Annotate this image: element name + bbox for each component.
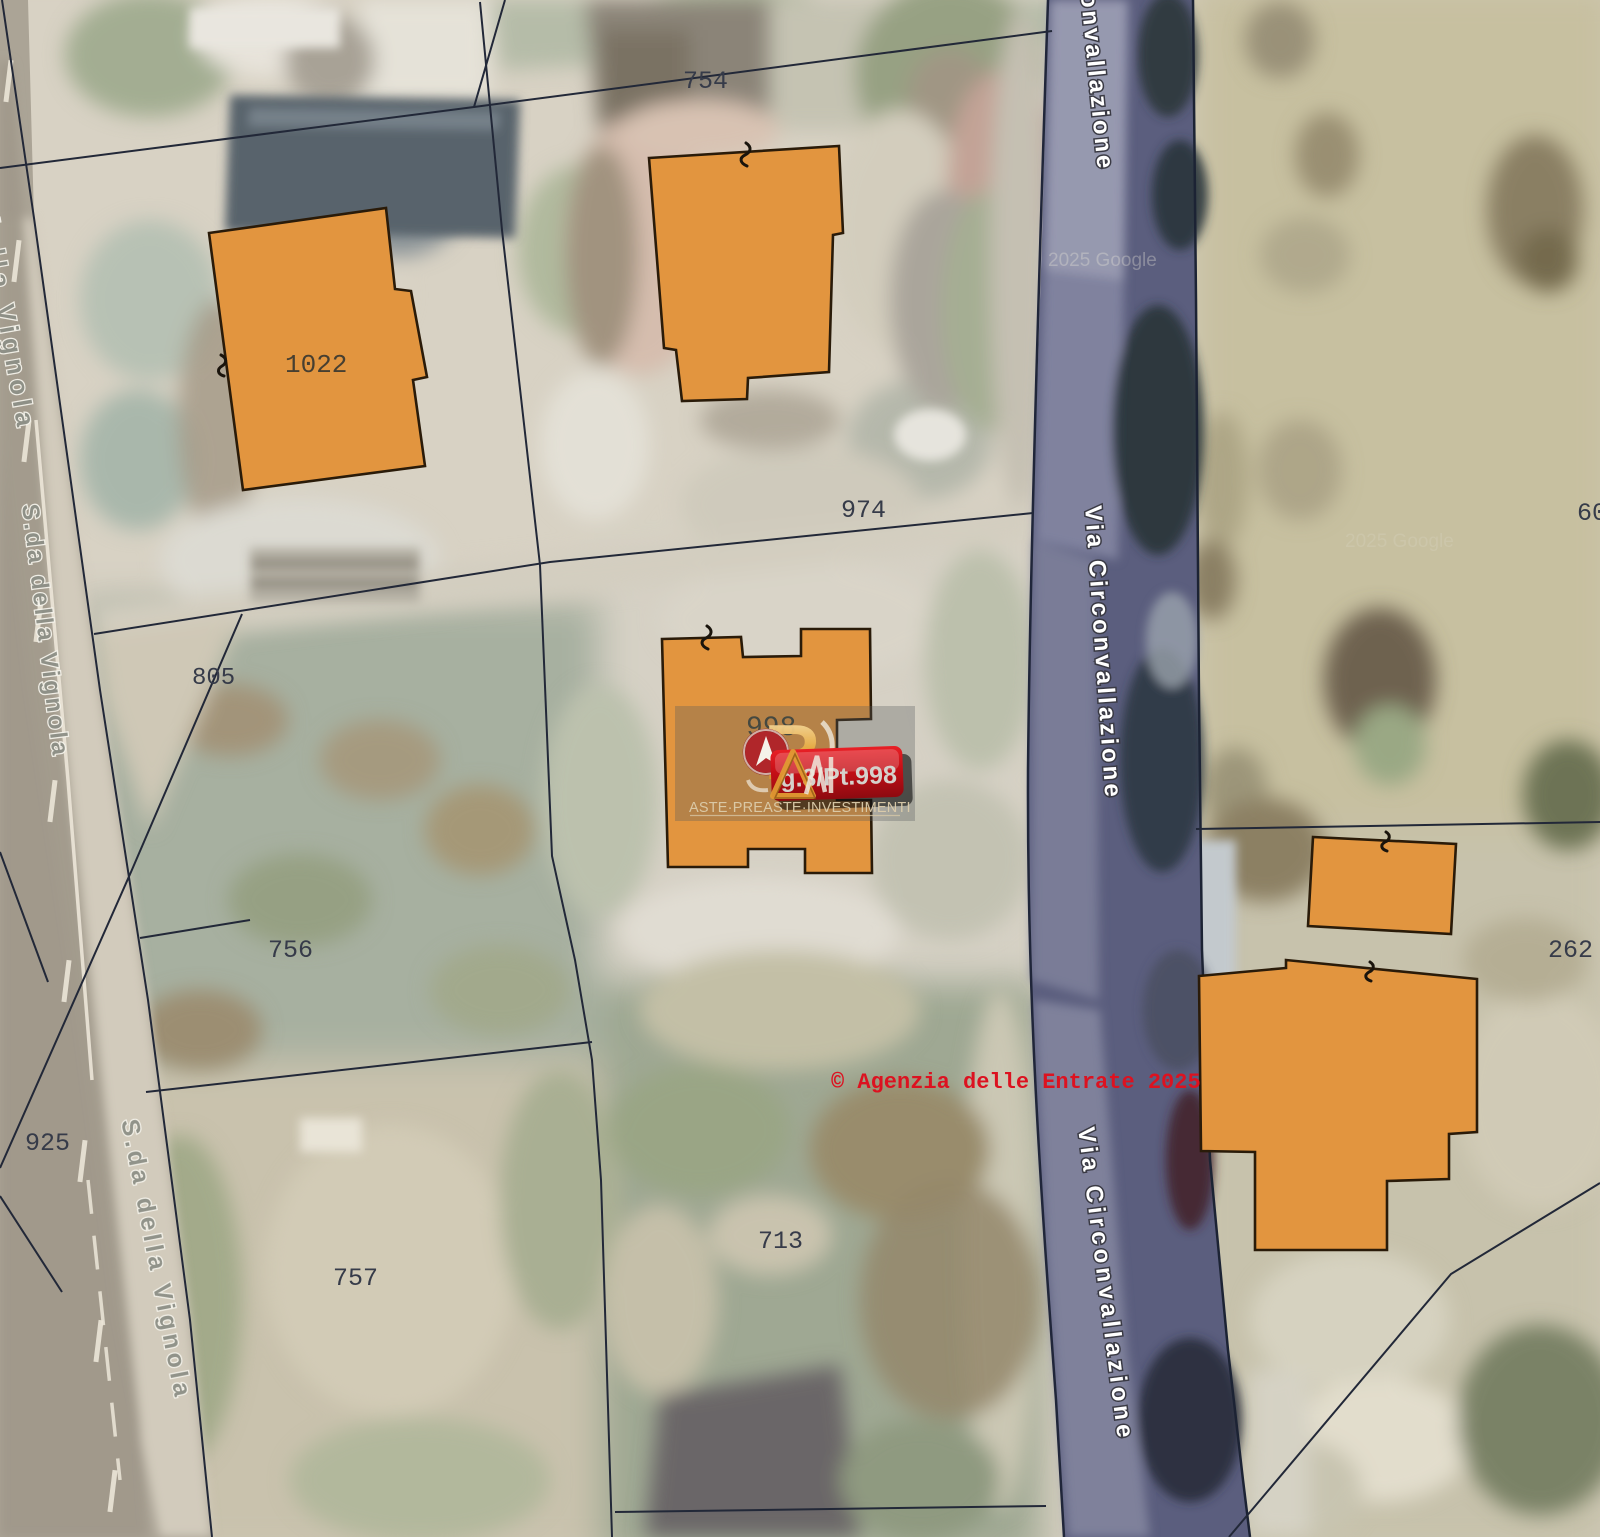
svg-text:602: 602 <box>1577 499 1600 528</box>
svg-text:756: 756 <box>268 936 313 965</box>
svg-text:2025 Google: 2025 Google <box>1345 531 1454 552</box>
svg-text:757: 757 <box>333 1264 378 1293</box>
svg-text:© Agenzia delle Entrate 2025: © Agenzia delle Entrate 2025 <box>831 1070 1201 1095</box>
svg-text:1022: 1022 <box>285 350 347 380</box>
svg-text:925: 925 <box>25 1129 70 1158</box>
svg-text:713: 713 <box>758 1227 803 1256</box>
svg-text:ASTE·PREASTE·INVESTIMENTI: ASTE·PREASTE·INVESTIMENTI <box>689 800 911 816</box>
svg-text:262: 262 <box>1548 936 1593 965</box>
svg-text:754: 754 <box>683 67 728 96</box>
svg-text:2025 Google: 2025 Google <box>1048 250 1157 271</box>
svg-text:974: 974 <box>841 496 886 525</box>
svg-text:805: 805 <box>192 665 235 692</box>
